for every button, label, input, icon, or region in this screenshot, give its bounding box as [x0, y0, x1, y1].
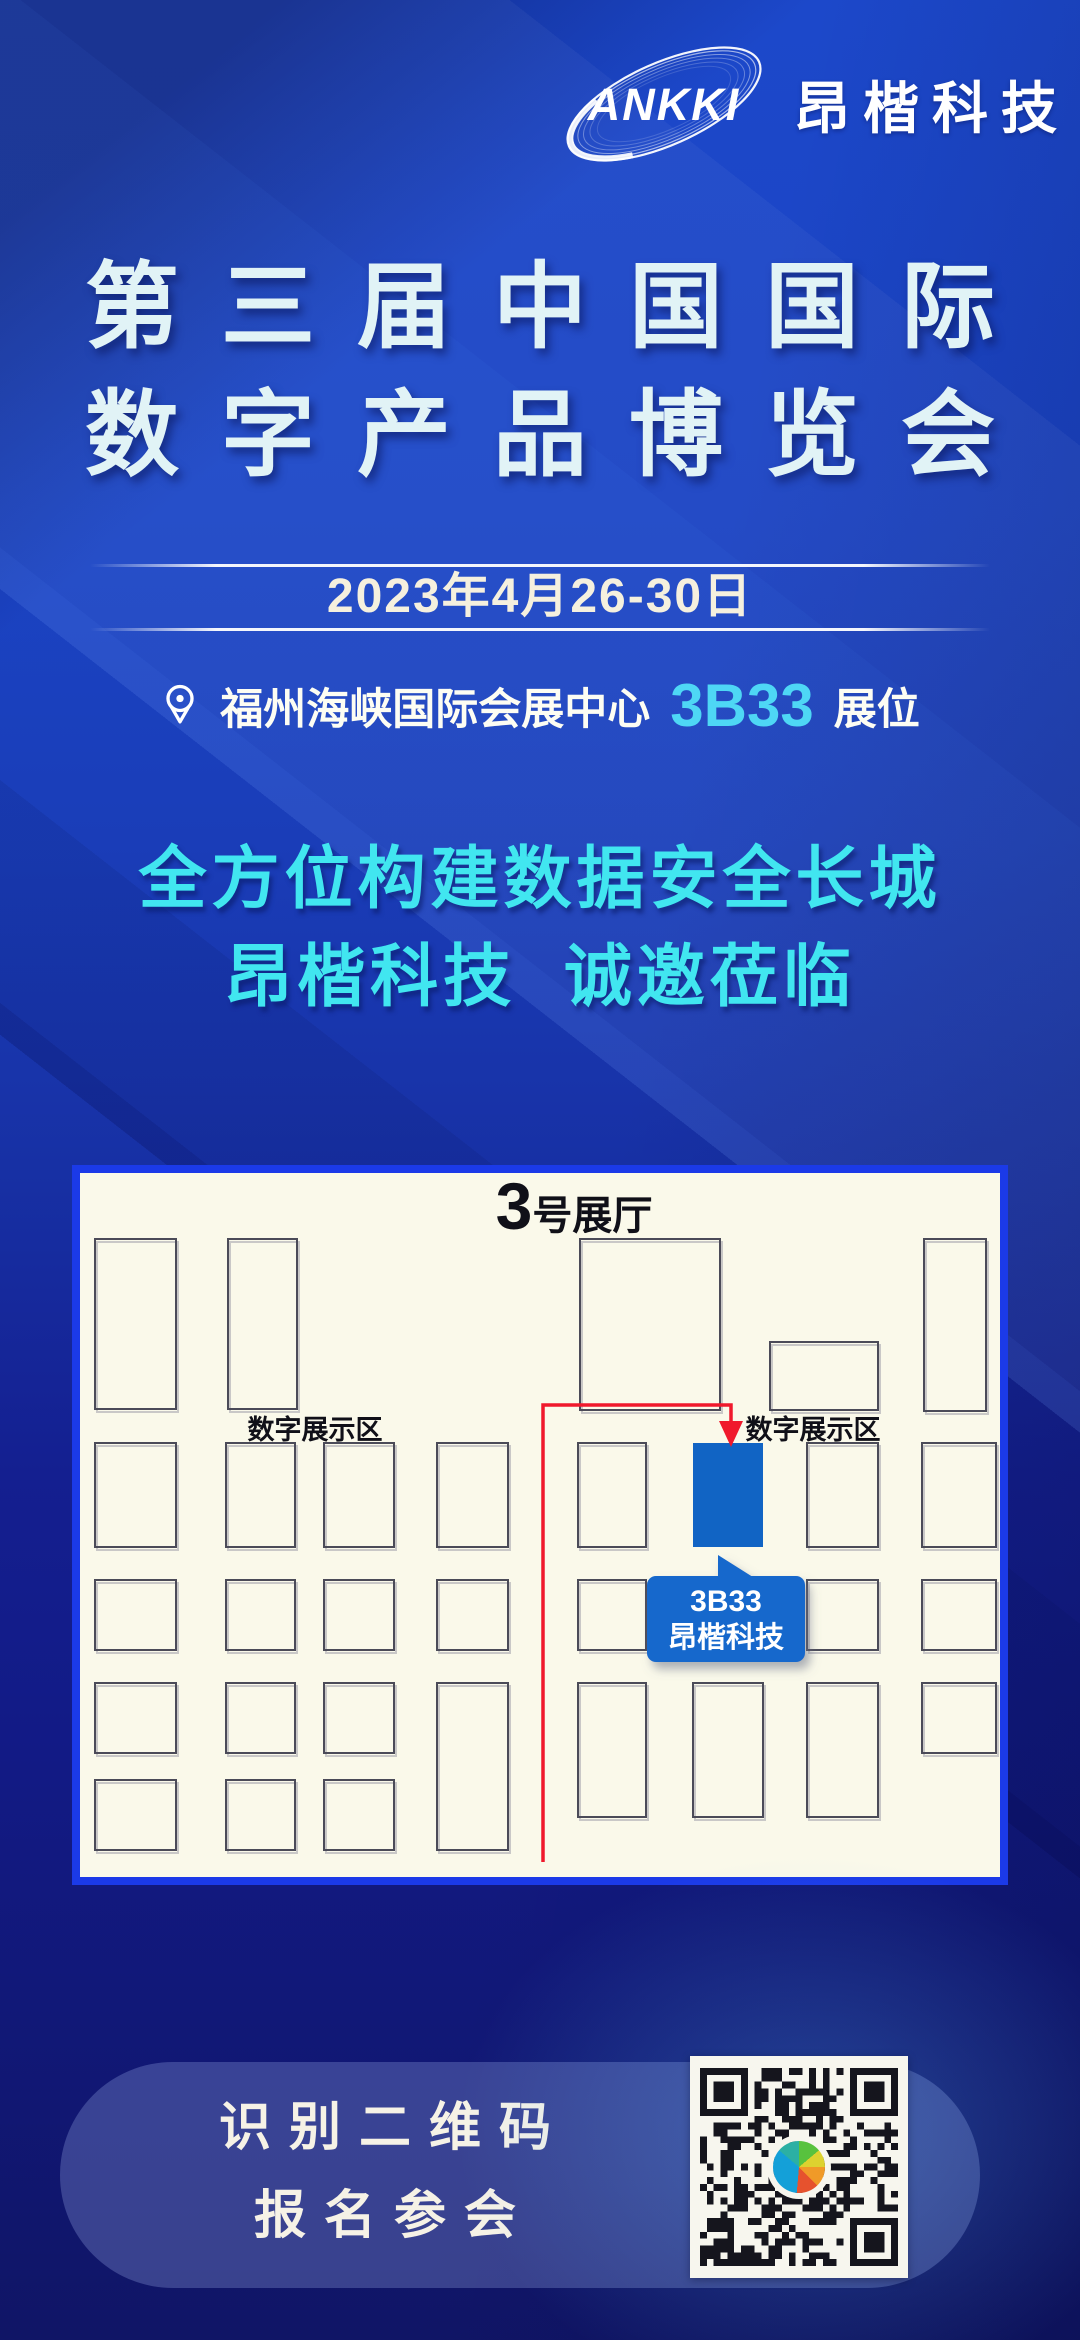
- location-pin-icon: [160, 680, 200, 732]
- slogan-line-2: 昂楷科技 诚邀莅临: [0, 938, 1080, 1016]
- booth-outline: [693, 1683, 763, 1817]
- footer-line-2: 报名参会: [236, 2190, 534, 2242]
- callout-company-name: 昂楷科技: [668, 1621, 784, 1654]
- booth-highlight: [693, 1443, 763, 1547]
- booth-outline: [226, 1780, 295, 1850]
- footer-line-1: 识别二维码: [201, 2102, 569, 2154]
- venue-text: 福州海峡国际会展中心: [220, 675, 650, 737]
- qr-code: [690, 2056, 908, 2278]
- booth-outline: [807, 1580, 878, 1650]
- booth-outline: [770, 1342, 878, 1410]
- booth-outline: [578, 1683, 646, 1817]
- booth-outline: [922, 1580, 996, 1650]
- location-row: 福州海峡国际会展中心3B33展位: [0, 664, 1080, 748]
- booth-outline: [226, 1683, 295, 1753]
- zone-label-right: 数字展示区: [746, 1414, 881, 1445]
- floor-map: 3号展厅: [72, 1165, 1008, 1885]
- booth-outline: [807, 1443, 878, 1547]
- booth-grid: [95, 1239, 996, 1850]
- booth-outline: [437, 1580, 508, 1650]
- booth-outline: [95, 1239, 176, 1409]
- booth-outline: [922, 1443, 996, 1547]
- event-date: 2023年4月26-30日: [0, 566, 1080, 628]
- booth-outline: [437, 1443, 508, 1547]
- booth-outline: [95, 1580, 176, 1650]
- booth-outline: [95, 1780, 176, 1850]
- booth-outline: [226, 1580, 295, 1650]
- venue-suffix: 展位: [834, 675, 920, 737]
- hall-title: 3号展厅: [496, 1173, 653, 1243]
- booth-callout: 3B33 昂楷科技: [647, 1555, 805, 1662]
- brand-logo: ANKKI 昂楷科技: [548, 44, 1048, 164]
- booth-outline: [437, 1683, 508, 1850]
- booth-number: 3B33: [670, 676, 813, 736]
- booth-outline: [95, 1443, 176, 1547]
- booth-outline: [578, 1580, 646, 1650]
- booth-outline: [324, 1683, 394, 1753]
- title-line-1: 第三届中国国际: [0, 252, 1080, 362]
- booth-outline: [324, 1580, 394, 1650]
- footer-text-block: 识别二维码 报名参会: [65, 2062, 705, 2288]
- callout-booth-number: 3B33: [690, 1585, 762, 1618]
- poster-background: ANKKI 昂楷科技 第三届中国国际 数字产品博览会 2023年4月26-30日…: [0, 0, 1080, 2340]
- slogan-line-1: 全方位构建数据安全长城: [0, 840, 1080, 918]
- booth-outline: [807, 1683, 878, 1817]
- booth-outline: [228, 1239, 297, 1409]
- booth-outline: [226, 1443, 295, 1547]
- booth-outline: [324, 1780, 394, 1850]
- booth-outline: [922, 1683, 996, 1753]
- booth-outline: [324, 1443, 394, 1547]
- booth-outline: [578, 1443, 646, 1547]
- zone-label-left: 数字展示区: [248, 1414, 383, 1445]
- brand-name: 昂楷科技: [794, 64, 1070, 145]
- ankki-swoosh-icon: ANKKI: [548, 44, 780, 164]
- title-line-2: 数字产品博览会: [0, 380, 1080, 490]
- booth-outline: [924, 1239, 986, 1411]
- brand-logo-text: ANKKI: [587, 79, 741, 130]
- date-separator-bottom: [90, 628, 990, 631]
- qr-center-logo-icon: [773, 2141, 825, 2193]
- booth-outline: [580, 1239, 720, 1410]
- booth-outline: [95, 1683, 176, 1753]
